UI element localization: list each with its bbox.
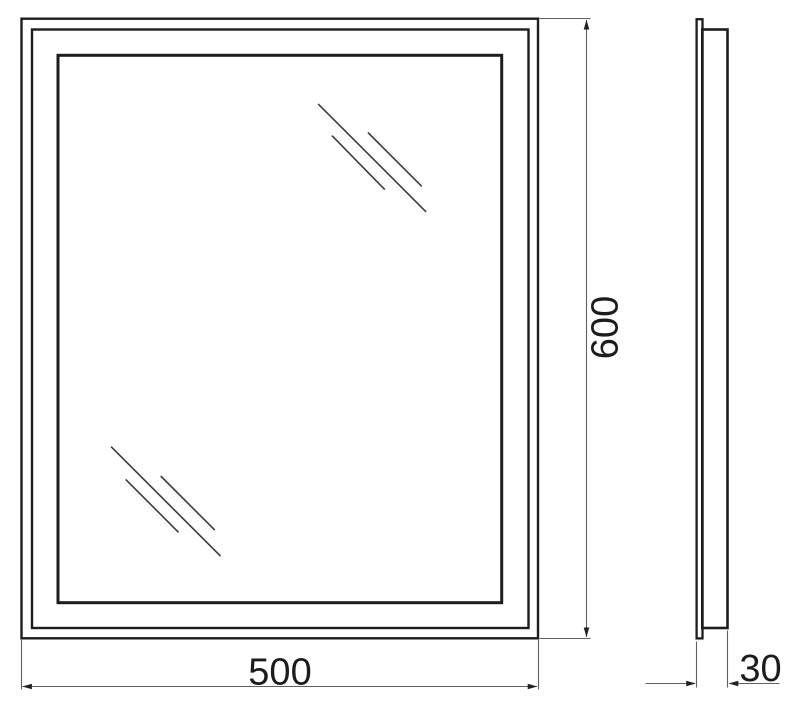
- svg-text:600: 600: [585, 296, 627, 359]
- svg-text:30: 30: [739, 648, 781, 690]
- svg-text:500: 500: [248, 652, 311, 694]
